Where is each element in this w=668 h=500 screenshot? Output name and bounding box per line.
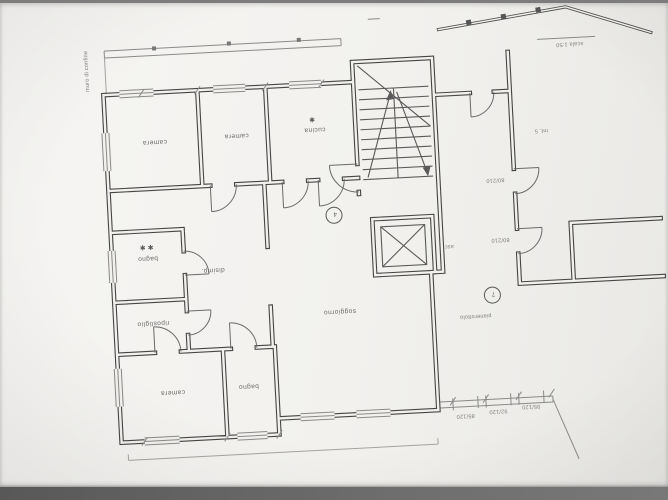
photographed-paper: asc. camera camera cucina xyxy=(0,3,668,487)
room-label-cucina: cucina xyxy=(304,126,326,134)
dimension-ticks xyxy=(123,68,556,445)
corner-note: scala 1:50 xyxy=(556,40,584,47)
stairs xyxy=(357,62,433,180)
neighbor-unit-note: int. 5 xyxy=(534,127,548,134)
neighbor-wing-walls xyxy=(438,3,651,44)
floor-plan-drawing: asc. camera camera cucina xyxy=(0,3,668,487)
window-size-label: 92/120 xyxy=(489,407,508,414)
photo-bottom-edge xyxy=(0,487,668,500)
room-label-ripostiglio: ripostiglio xyxy=(137,319,170,328)
room-label-bagno-1: bagno xyxy=(138,255,159,263)
window-size-label: 95/120 xyxy=(522,403,541,410)
cucina-mark: ✱ xyxy=(309,115,315,123)
bagno-1-mark: ✱ ✱ xyxy=(139,243,153,252)
annotations: scala 1:50 muro di confine pianerottolo … xyxy=(83,24,609,339)
room-label-camera-3: camera xyxy=(161,388,186,396)
room-label-disimpegno: disimp. xyxy=(201,266,225,274)
elevator-label: asc. xyxy=(442,243,454,250)
room-label-soggiorno: soggiorno xyxy=(323,307,356,316)
room-labels: camera camera cucina ✱ bagno ✱ ✱ riposti… xyxy=(127,114,360,398)
room-label-camera-1: camera xyxy=(142,138,167,146)
landing-note: pianerottolo xyxy=(460,312,492,320)
walls xyxy=(102,44,668,442)
room-label-bagno-2: bagno xyxy=(238,382,259,390)
unit-badge-4: 4 xyxy=(333,210,337,217)
room-label-camera-2: camera xyxy=(224,132,249,140)
unit-badge-7: 7 xyxy=(491,290,495,297)
window-size-label: 85/120 xyxy=(456,412,475,419)
door-size-label: 80/210 xyxy=(491,236,510,243)
door-size-label: 80/210 xyxy=(486,176,505,183)
side-wall-note: muro di confine xyxy=(83,51,91,93)
